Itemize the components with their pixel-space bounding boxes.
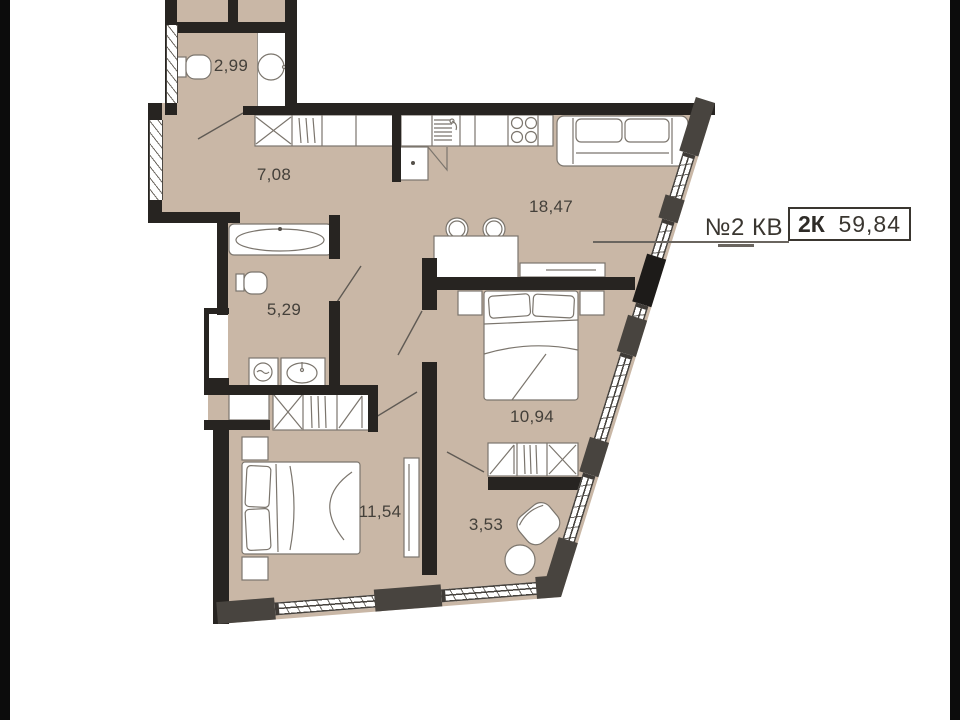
bed-primary [484, 291, 578, 400]
wall [213, 428, 229, 624]
wall [204, 385, 378, 395]
side-table [505, 545, 535, 575]
wall [368, 385, 378, 432]
wall [204, 308, 209, 384]
entry-closet [229, 394, 269, 420]
nightstand [458, 291, 482, 315]
door-swing-wc [198, 113, 243, 139]
room-label-wc: 2,99 [214, 56, 248, 76]
kitchen-island [398, 147, 447, 180]
room-label-balcony: 3,53 [469, 515, 503, 535]
apartment-number: №2 КВ [655, 215, 783, 241]
room-label-bathroom: 5,29 [267, 300, 301, 320]
washing-machine [249, 358, 278, 387]
wall [437, 277, 635, 290]
bed-secondary [242, 462, 360, 554]
sofa [557, 116, 688, 166]
wall [243, 106, 297, 115]
window [274, 594, 383, 615]
tv-console [520, 263, 605, 277]
wall [329, 301, 340, 395]
wall-hatch [149, 120, 163, 200]
wall [285, 0, 297, 115]
leader-line [593, 241, 789, 243]
room-label-bedroom-primary: 10,94 [510, 407, 554, 427]
dining-table [434, 236, 518, 282]
wall-hatch [166, 25, 178, 103]
apartment-summary-box: 2К 59,84 [788, 207, 911, 241]
door-swing-balcony [447, 452, 484, 472]
wc-toilet [177, 55, 211, 79]
open-door-leaf [404, 458, 419, 557]
wall [422, 258, 437, 310]
bathroom-toilet [236, 272, 267, 294]
wall [329, 215, 340, 259]
leader-underline [718, 244, 754, 247]
wall-pier [216, 598, 276, 624]
nightstand [242, 437, 268, 460]
bathroom-sink [281, 358, 325, 387]
nightstand [580, 291, 604, 315]
bathtub [229, 224, 332, 255]
wall [295, 103, 715, 115]
floor-plan: 2,99 7,08 18,47 5,29 10,94 11,54 3,53 №2… [0, 0, 960, 720]
door-swing-bedroom-primary [398, 311, 422, 355]
wall [165, 22, 297, 33]
wall [392, 113, 401, 182]
wall [422, 362, 437, 575]
hall-wardrobe [273, 394, 373, 430]
apartment-type: 2К [798, 211, 825, 238]
wall [488, 477, 582, 490]
room-label-hallway: 7,08 [257, 165, 291, 185]
window [441, 581, 545, 602]
hall-closet [255, 115, 393, 146]
wall-pier [535, 575, 561, 599]
bedroom-wardrobe [488, 443, 578, 476]
room-label-bedroom-secondary: 11,54 [359, 502, 402, 522]
apartment-total-area: 59,84 [838, 211, 901, 238]
nightstand [242, 557, 268, 580]
room-label-living-kitchen: 18,47 [529, 197, 573, 217]
kitchen-counter [401, 115, 553, 146]
wall [217, 215, 228, 315]
